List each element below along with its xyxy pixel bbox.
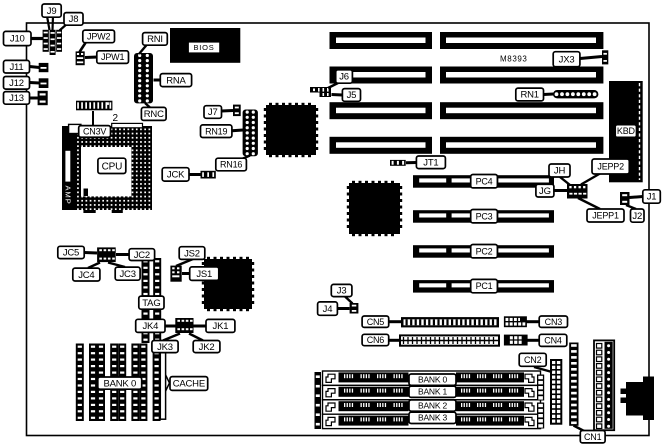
svg-text:CN4: CN4: [544, 335, 562, 345]
svg-text:J2: J2: [632, 211, 642, 222]
svg-text:J7: J7: [208, 107, 218, 118]
svg-text:JEPP1: JEPP1: [592, 211, 619, 221]
svg-text:J6: J6: [339, 72, 349, 83]
svg-text:RN16: RN16: [220, 160, 242, 170]
svg-text:J12: J12: [9, 78, 24, 89]
svg-text:JS2: JS2: [184, 248, 200, 259]
svg-text:RNI: RNI: [147, 34, 163, 45]
svg-text:PC2: PC2: [476, 246, 493, 256]
svg-text:JC3: JC3: [120, 269, 136, 280]
svg-text:J13: J13: [9, 93, 24, 104]
svg-text:BANK 0: BANK 0: [418, 375, 448, 385]
svg-text:TAG: TAG: [142, 298, 160, 309]
svg-text:JT1: JT1: [423, 158, 438, 169]
svg-text:CN6: CN6: [367, 335, 385, 345]
svg-text:2: 2: [113, 113, 119, 124]
svg-text:JCK: JCK: [167, 170, 185, 181]
svg-text:BANK 2: BANK 2: [418, 400, 448, 410]
svg-text:CN3: CN3: [545, 317, 563, 327]
svg-text:J5: J5: [347, 90, 357, 101]
svg-text:CN2: CN2: [524, 355, 542, 365]
svg-text:JG: JG: [539, 186, 551, 197]
svg-text:J4: J4: [323, 304, 333, 315]
svg-text:RNA: RNA: [166, 75, 186, 86]
svg-text:J11: J11: [9, 62, 23, 73]
svg-text:J10: J10: [10, 34, 25, 45]
svg-text:JC2: JC2: [134, 250, 150, 261]
svg-text:CN5: CN5: [367, 317, 385, 327]
svg-text:CN1: CN1: [584, 432, 602, 442]
svg-text:CN3V: CN3V: [83, 126, 106, 136]
svg-text:JEPP2: JEPP2: [597, 162, 624, 172]
svg-text:JC5: JC5: [63, 248, 79, 259]
svg-text:J8: J8: [69, 14, 79, 25]
svg-text:JX3: JX3: [559, 54, 575, 65]
svg-text:JPW2: JPW2: [87, 31, 110, 41]
svg-text:AMP: AMP: [64, 186, 73, 205]
svg-text:BANK 1: BANK 1: [418, 387, 448, 397]
svg-text:JH: JH: [554, 166, 566, 177]
svg-text:RN1: RN1: [520, 90, 538, 101]
svg-text:BANK 3: BANK 3: [418, 413, 448, 423]
svg-text:JK3: JK3: [157, 342, 173, 353]
svg-text:JK4: JK4: [142, 321, 158, 332]
svg-text:PC1: PC1: [476, 281, 493, 291]
svg-text:JK2: JK2: [199, 342, 215, 353]
svg-text:PC4: PC4: [476, 176, 493, 186]
svg-text:JPW1: JPW1: [101, 52, 124, 62]
svg-text:BANK 0: BANK 0: [103, 378, 136, 389]
svg-text:BIOS: BIOS: [193, 43, 214, 52]
svg-text:PC3: PC3: [476, 211, 493, 221]
svg-text:RNC: RNC: [144, 109, 164, 120]
svg-text:J3: J3: [337, 286, 347, 297]
svg-text:CACHE: CACHE: [173, 379, 205, 390]
svg-text:CPU: CPU: [102, 161, 123, 172]
svg-text:JK1: JK1: [213, 321, 229, 332]
svg-text:J9: J9: [47, 6, 57, 17]
svg-text:RN19: RN19: [205, 126, 227, 136]
svg-text:JS1: JS1: [196, 269, 212, 280]
svg-text:J1: J1: [647, 192, 657, 203]
svg-text:M8393: M8393: [500, 55, 527, 64]
svg-text:JC4: JC4: [78, 270, 94, 281]
svg-text:KBD: KBD: [617, 126, 636, 136]
